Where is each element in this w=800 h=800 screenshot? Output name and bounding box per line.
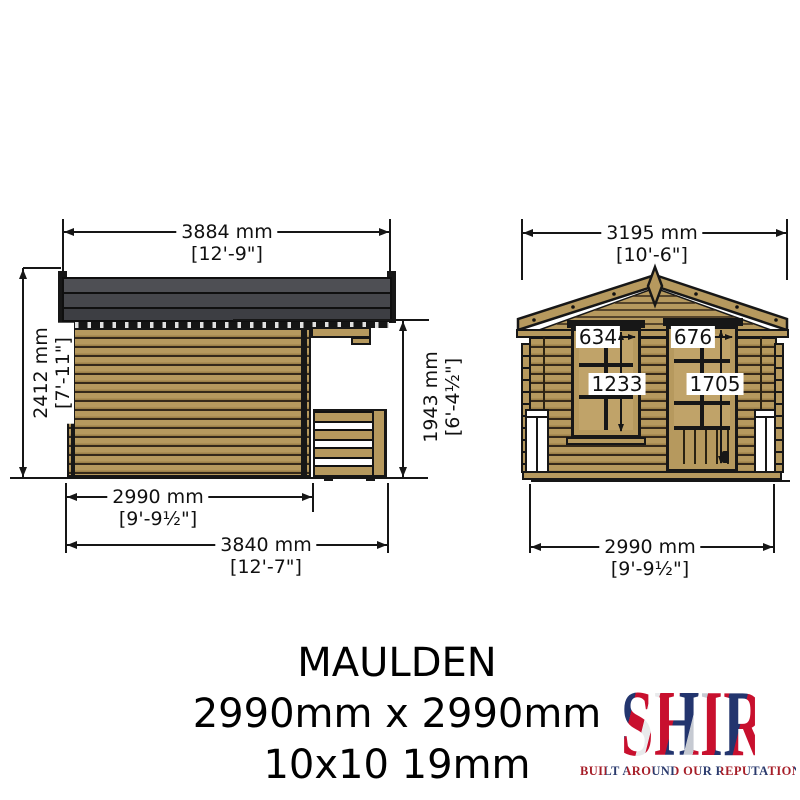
dim-mm: 3195 mm [606, 222, 697, 244]
dim-mm: 2990 mm [604, 536, 695, 558]
brand-wordmark: SHIRE [621, 684, 755, 764]
extension-line [389, 219, 391, 275]
arrow-up-icon [618, 332, 624, 340]
railing-end-post [372, 409, 386, 477]
arrow-up-icon [718, 330, 724, 338]
dim-ft: [9'-9½"] [604, 558, 695, 580]
dim-ft: [9'-9½"] [112, 508, 203, 530]
dim-ft: [6'-4½"] [442, 351, 464, 442]
corner-log-ends [774, 343, 784, 473]
extension-line [773, 484, 775, 553]
dim-ft: [7'-11"] [52, 327, 74, 418]
front-wall [529, 337, 777, 473]
arrow-down-icon [618, 424, 624, 432]
arrow-right-icon [763, 543, 773, 551]
dim-base-width: 3840 mm [12'-7"] [215, 534, 316, 578]
dimension-line [720, 330, 722, 463]
dim-mm: 1943 mm [420, 351, 442, 442]
dim-mm: 2412 mm [30, 327, 52, 418]
arrow-down-icon [718, 456, 724, 464]
dim-mm: 3840 mm [220, 534, 311, 556]
dim-cabin-width: 2990 mm [9'-9½"] [107, 486, 208, 530]
floor-base [522, 471, 782, 480]
extension-line [387, 483, 389, 553]
arrow-right-icon [776, 229, 786, 237]
rail-post-line [536, 418, 538, 471]
arrow-left-icon [531, 543, 541, 551]
dim-roof-width: 3884 mm [12'-9"] [176, 221, 277, 265]
door-width-label: 676 [671, 326, 715, 348]
rail-post-line [765, 418, 767, 471]
arrow-up-icon [399, 321, 407, 331]
arrow-down-icon [399, 467, 407, 477]
dimension-line [402, 320, 404, 477]
side-wall [67, 328, 311, 477]
dim-ft: [12'-9"] [181, 243, 272, 265]
dim-roof-width: 3195 mm [10'-6"] [601, 222, 702, 266]
arrow-right-icon [302, 493, 312, 501]
arrow-up-icon [19, 269, 27, 279]
arrow-left-icon [523, 229, 533, 237]
shed-dimension-diagram: 3884 mm [12'-9"] 2412 mm [7'-11"] [0, 0, 800, 800]
window-sill [566, 437, 646, 445]
ground-shadow [531, 480, 790, 482]
ground-line [10, 477, 428, 479]
window-height-label: 1233 [589, 373, 646, 395]
arrow-right-icon [725, 334, 733, 340]
door-height-label: 1705 [687, 373, 744, 395]
arrow-right-icon [379, 228, 389, 236]
shire-logo: SHIRE BUILT AROUND OUR REPUTATION [580, 684, 796, 779]
corner-post [301, 330, 307, 475]
arrow-right-icon [628, 334, 636, 340]
extension-line [23, 267, 61, 269]
window-width-label: 634 [576, 326, 620, 348]
dim-mm: 2990 mm [112, 486, 203, 508]
gable-roof [505, 263, 800, 335]
product-name: MAULDEN [117, 638, 677, 689]
dim-ft: [12'-7"] [220, 556, 311, 578]
pent-roof [62, 277, 392, 322]
arrow-left-icon [64, 228, 74, 236]
arrow-left-icon [67, 541, 77, 549]
dim-base-width: 2990 mm [9'-9½"] [599, 536, 700, 580]
dim-mm: 3884 mm [181, 221, 272, 243]
veranda-beam-step [351, 337, 371, 345]
dimension-line [22, 268, 24, 477]
arrow-right-icon [377, 541, 387, 549]
arrow-left-icon [67, 493, 77, 501]
dim-total-height: 2412 mm [7'-11"] [30, 322, 74, 423]
dim-veranda-height: 1943 mm [6'-4½"] [420, 346, 464, 447]
arrow-down-icon [19, 467, 27, 477]
